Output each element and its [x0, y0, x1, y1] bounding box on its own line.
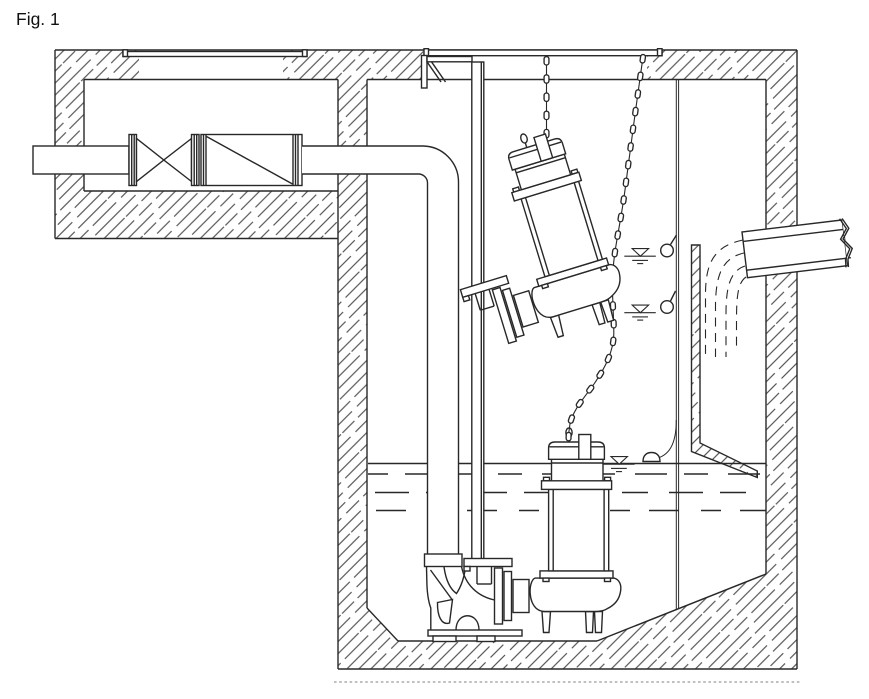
- svg-text:Fig. 1: Fig. 1: [16, 9, 60, 29]
